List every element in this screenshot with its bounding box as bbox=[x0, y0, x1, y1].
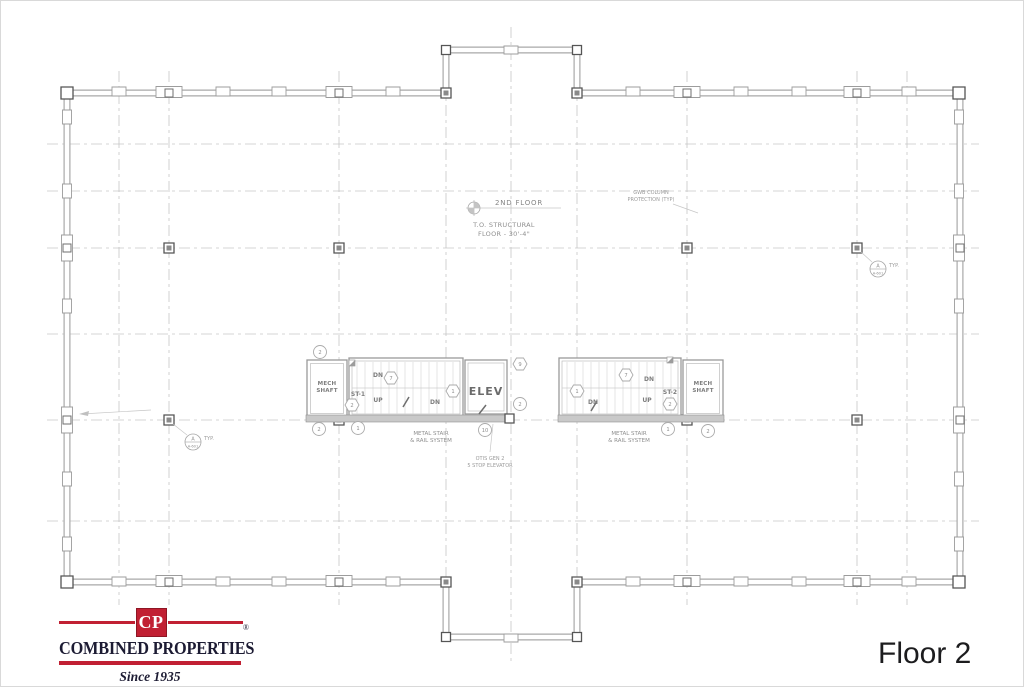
svg-text:7: 7 bbox=[624, 373, 627, 379]
floor-title: Floor 2 bbox=[878, 637, 971, 671]
sheet: MECH SHAFT ST-1 DN UP DN ELEV METAL STAI… bbox=[0, 0, 1024, 687]
svg-text:1: 1 bbox=[451, 389, 454, 395]
up-label: UP bbox=[373, 397, 383, 404]
svg-text:GWB COLUMN: GWB COLUMN bbox=[633, 190, 669, 196]
structural-note: T.O. STRUCTURAL bbox=[472, 221, 535, 229]
up-label: UP bbox=[642, 397, 652, 404]
cp-monogram: CP bbox=[139, 612, 164, 633]
svg-text:7: 7 bbox=[389, 376, 392, 382]
stair-id-st2: ST-2 bbox=[663, 389, 677, 396]
svg-text:2: 2 bbox=[518, 402, 521, 408]
svg-text:SHAFT: SHAFT bbox=[692, 388, 713, 394]
svg-text:1: 1 bbox=[575, 389, 578, 395]
svg-text:2: 2 bbox=[706, 429, 709, 435]
grid-lines bbox=[47, 27, 979, 661]
stair-note-left: METAL STAIR bbox=[413, 431, 449, 437]
floor-plan-drawing: MECH SHAFT ST-1 DN UP DN ELEV METAL STAI… bbox=[1, 1, 1024, 687]
dn-label: DN bbox=[588, 399, 598, 406]
detail-callout-right: A A-601 TYP. bbox=[861, 252, 899, 277]
svg-text:A-601: A-601 bbox=[873, 272, 884, 276]
registered-mark: ® bbox=[243, 623, 249, 632]
company-name: COMBINED PROPERTIES bbox=[59, 638, 230, 659]
svg-text:5 STOP ELEVATOR: 5 STOP ELEVATOR bbox=[467, 463, 513, 469]
dn-label: DN bbox=[644, 376, 654, 383]
level-annotation: 2ND FLOOR T.O. STRUCTURAL FLOOR - 30'-4" bbox=[466, 199, 561, 238]
wall-leader bbox=[79, 410, 151, 416]
svg-text:2: 2 bbox=[668, 402, 671, 408]
svg-text:TYP.: TYP. bbox=[203, 436, 214, 442]
svg-text:SHAFT: SHAFT bbox=[316, 388, 337, 394]
logo-underline bbox=[59, 661, 241, 665]
company-tagline: Since 1935 bbox=[59, 669, 241, 685]
dn-label: DN bbox=[430, 399, 440, 406]
building-outline bbox=[67, 50, 960, 637]
svg-text:PROTECTION (TYP): PROTECTION (TYP) bbox=[628, 197, 675, 203]
logo-rule-right bbox=[168, 621, 244, 624]
stair-room-left bbox=[349, 358, 463, 417]
svg-text:& RAIL SYSTEM: & RAIL SYSTEM bbox=[410, 438, 452, 444]
wall-pilasters bbox=[61, 46, 965, 643]
company-logo: CP ® COMBINED PROPERTIES Since 1935 bbox=[59, 607, 243, 685]
dn-label: DN bbox=[373, 372, 383, 379]
svg-text:2: 2 bbox=[350, 403, 353, 409]
stair-note-right: METAL STAIR bbox=[611, 431, 647, 437]
svg-text:10: 10 bbox=[482, 428, 489, 434]
gwb-note: GWB COLUMN PROTECTION (TYP) bbox=[628, 190, 698, 213]
mech-shaft-label: MECH bbox=[318, 381, 337, 387]
stair-id-st1: ST-1 bbox=[351, 391, 365, 398]
elevator-label: ELEV bbox=[469, 385, 504, 398]
svg-text:1: 1 bbox=[356, 426, 359, 432]
detail-callout-left: A A-601 TYP. bbox=[173, 424, 214, 450]
logo-rule-left bbox=[59, 621, 135, 624]
logo-top-row: CP ® bbox=[59, 607, 243, 637]
svg-text:9: 9 bbox=[518, 362, 521, 368]
svg-text:OTIS GEN 2: OTIS GEN 2 bbox=[476, 456, 505, 462]
svg-text:& RAIL SYSTEM: & RAIL SYSTEM bbox=[608, 438, 650, 444]
level-name: 2ND FLOOR bbox=[495, 199, 543, 207]
svg-text:1: 1 bbox=[666, 427, 669, 433]
svg-text:FLOOR - 30'-4": FLOOR - 30'-4" bbox=[478, 230, 530, 238]
mech-shaft-label: MECH bbox=[694, 381, 713, 387]
svg-text:TYP.: TYP. bbox=[888, 263, 899, 269]
svg-text:A-601: A-601 bbox=[188, 445, 199, 449]
cp-monogram-icon: CP bbox=[136, 608, 167, 637]
svg-text:2: 2 bbox=[318, 350, 321, 356]
svg-text:2: 2 bbox=[317, 427, 320, 433]
